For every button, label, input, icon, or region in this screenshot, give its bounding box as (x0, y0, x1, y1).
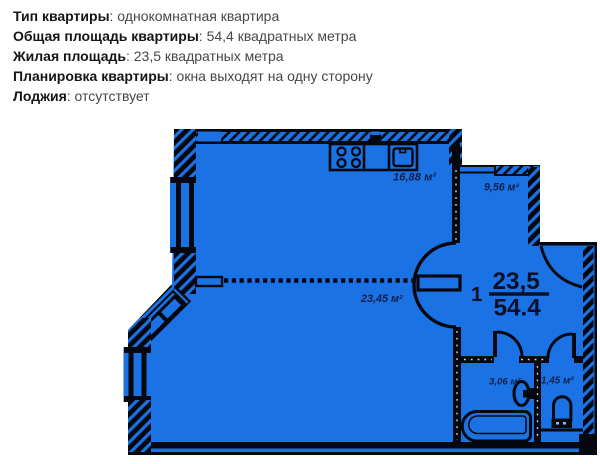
svg-text:16,88 м²: 16,88 м² (393, 172, 436, 184)
svg-text:23,45 м²: 23,45 м² (360, 293, 403, 305)
svg-text:9,56 м²: 9,56 м² (484, 182, 519, 194)
svg-text:23,5: 23,5 (493, 268, 540, 295)
svg-text:54.4: 54.4 (494, 295, 542, 322)
svg-text:1: 1 (471, 283, 482, 306)
svg-text:3,06 м²: 3,06 м² (489, 377, 521, 388)
svg-text:1,45 м²: 1,45 м² (541, 376, 574, 387)
